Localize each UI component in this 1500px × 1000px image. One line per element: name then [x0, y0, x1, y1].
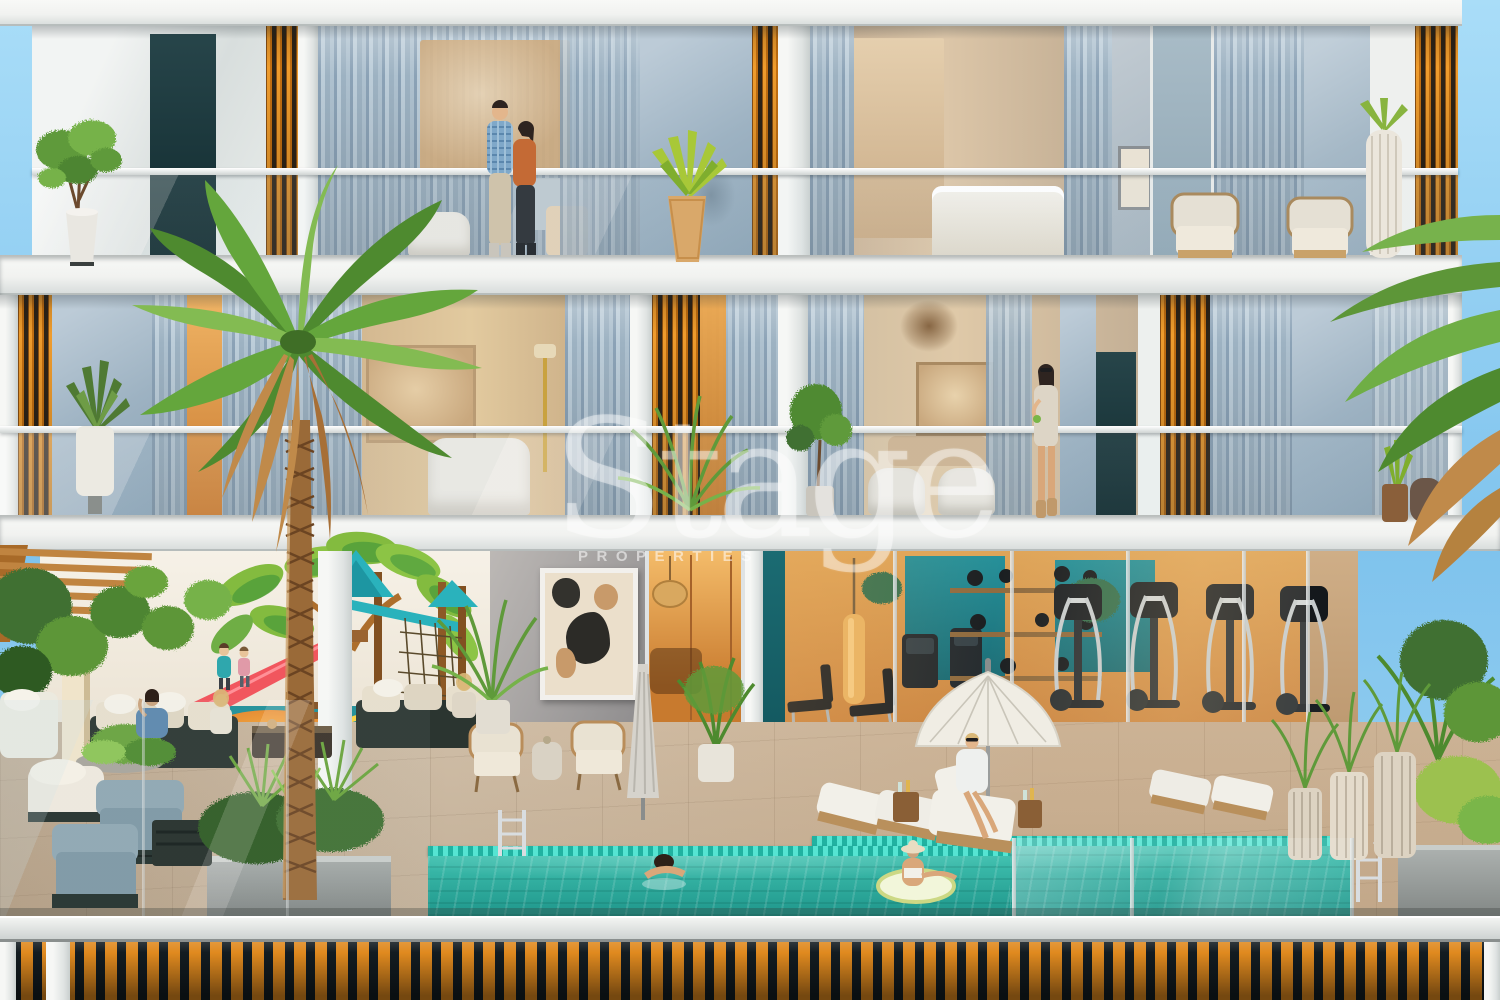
lounge-glass-balustrade — [0, 700, 430, 916]
sun-lounger-3 — [1147, 768, 1213, 815]
fence-post-left-edge — [0, 942, 16, 1000]
couple-on-balcony — [487, 100, 536, 257]
agave-mid-left — [66, 360, 130, 514]
pool-glass-post-3 — [1350, 838, 1354, 916]
swimmer-in-pool — [642, 854, 686, 890]
pool-ladder-left — [500, 810, 524, 856]
lounger-side-table-2 — [1018, 788, 1042, 828]
palm-fronds-right — [1330, 215, 1500, 582]
fence-post-left — [46, 942, 70, 1000]
sun-lounger-4 — [1209, 774, 1275, 821]
wicker-chair-top-right-1 — [1172, 194, 1238, 258]
drum-side-table — [532, 736, 562, 780]
lounge-glass-joint-1 — [142, 700, 145, 916]
lounge-glass-joint-2 — [286, 700, 289, 916]
lady-palm-cafe — [678, 658, 754, 782]
sun-lounger-1 — [813, 781, 887, 836]
watermark-brand: Stage — [552, 398, 995, 562]
slatted-fence — [0, 942, 1500, 1000]
pool-glass-post-2 — [1130, 838, 1134, 916]
lounger-side-table-1 — [893, 780, 919, 822]
pool-glass-fence — [1012, 838, 1354, 916]
closed-umbrella — [627, 650, 659, 820]
watermark-subtitle: PROPERTIES — [578, 548, 760, 565]
agave-tall-vase — [652, 130, 727, 262]
architectural-render: Stage PROPERTIES — [0, 0, 1500, 1000]
deck-edge-shadow — [0, 908, 1500, 916]
fence-post-right-edge — [1484, 942, 1500, 1000]
cream-pots-right — [1272, 672, 1430, 860]
woman-on-float — [878, 840, 956, 902]
balcony-tree-top-left — [36, 120, 122, 266]
lounger-sitter — [927, 733, 1017, 853]
pool-deck-beam — [0, 916, 1500, 942]
woman-on-balcony — [1033, 364, 1058, 518]
patio-chair-2 — [572, 722, 624, 790]
wicker-chair-top-right-2 — [1288, 198, 1352, 258]
pool-glass-post-1 — [1012, 838, 1016, 916]
patio-chair-1 — [470, 724, 522, 792]
